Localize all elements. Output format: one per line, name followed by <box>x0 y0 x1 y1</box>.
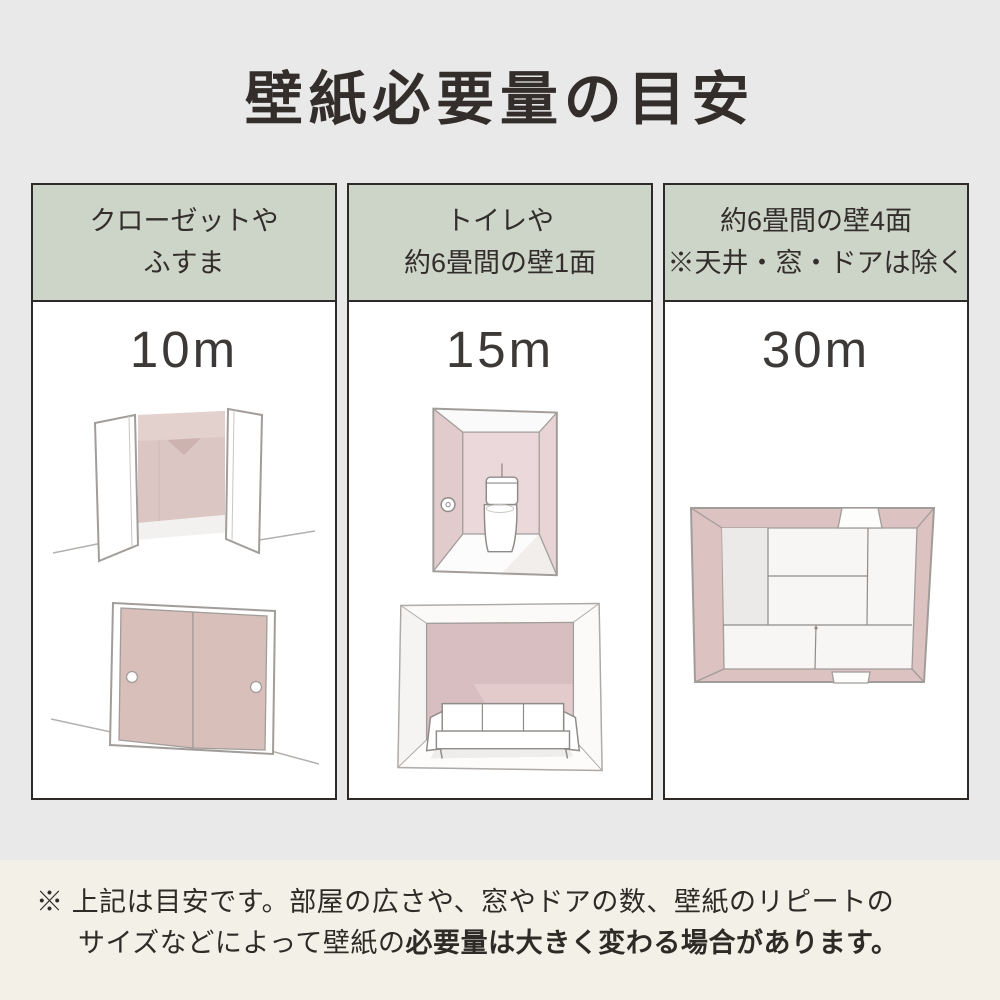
footnote-line2: サイズなどによって壁紙の必要量は大きく変わる場合があります。 <box>36 923 899 964</box>
fusuma-sliding-doors-illustration <box>39 589 329 774</box>
column-header-line2: ※天井・窓・ドアは除く <box>668 243 965 285</box>
footnote-line1-text: 上記は目安です。部屋の広さや、窓やドアの数、壁紙のリピートの <box>72 887 895 917</box>
guide-columns: クローゼットや ふすま 10m <box>31 183 969 800</box>
column-header: トイレや 約6畳間の壁1面 <box>349 185 651 302</box>
meters-value: 30m <box>665 320 967 379</box>
column-header-line1: クローゼットや <box>90 201 279 243</box>
column-header-line1: 約6畳間の壁4面 <box>720 201 912 243</box>
column-header-line1: トイレや <box>446 201 554 243</box>
meters-value: 10m <box>33 320 335 379</box>
tatami-room-top-view-illustration <box>666 465 966 705</box>
footnote-line1: ※ 上記は目安です。部屋の広さや、窓やドアの数、壁紙のリピートの <box>36 882 899 923</box>
column-header-line2: 約6畳間の壁1面 <box>404 243 596 285</box>
living-room-one-wall-illustration <box>385 594 615 780</box>
column-header: クローゼットや ふすま <box>33 185 335 302</box>
column-four-walls: 約6畳間の壁4面 ※天井・窓・ドアは除く 30m <box>663 183 969 800</box>
footnote-line2-bold: 必要量は大きく変わる場合があります。 <box>406 928 899 958</box>
column-header: 約6畳間の壁4面 ※天井・窓・ドアは除く <box>665 185 967 302</box>
column-header-line2: ふすま <box>144 243 225 285</box>
column-toilet-one-wall: トイレや 約6畳間の壁1面 15m <box>347 183 653 800</box>
meters-value: 15m <box>349 320 651 379</box>
column-closet-fusuma: クローゼットや ふすま 10m <box>31 183 337 800</box>
reference-mark: ※ <box>36 887 72 917</box>
footnote: ※ 上記は目安です。部屋の広さや、窓やドアの数、壁紙のリピートの サイズなどによ… <box>36 882 899 963</box>
open-closet-illustration <box>39 395 329 575</box>
footnote-line2-normal: サイズなどによって壁紙の <box>78 928 406 958</box>
page-title: 壁紙必要量の目安 <box>0 52 1000 136</box>
toilet-room-illustration <box>390 389 610 585</box>
